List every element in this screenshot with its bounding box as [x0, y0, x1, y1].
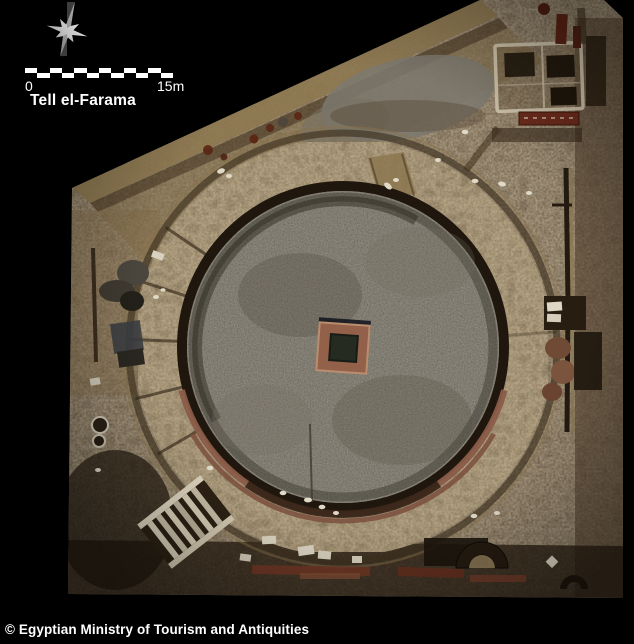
scale-bar-cell — [87, 73, 99, 78]
scale-bar-cell — [37, 73, 49, 78]
scale-bar-cell — [50, 73, 62, 78]
scale-bar-cell — [111, 73, 123, 78]
credit-line: © Egyptian Ministry of Tourism and Antiq… — [5, 622, 309, 637]
site-name-label: Tell el-Farama — [30, 92, 136, 110]
scale-bar-cell — [124, 73, 136, 78]
scale-bar-cell — [62, 73, 74, 78]
scale-bar — [25, 68, 173, 78]
scale-bar-cell — [136, 73, 148, 78]
photo-vignette — [60, 0, 630, 604]
north-star-icon — [46, 2, 88, 58]
scale-bar-cell — [99, 73, 111, 78]
scale-bar-row-bottom — [25, 73, 173, 78]
scale-bar-end-label: 15m — [157, 78, 184, 94]
figure-canvas: 0 15m Tell el-Farama © Egyptian Ministry… — [0, 0, 634, 644]
scale-bar-cell — [74, 73, 86, 78]
